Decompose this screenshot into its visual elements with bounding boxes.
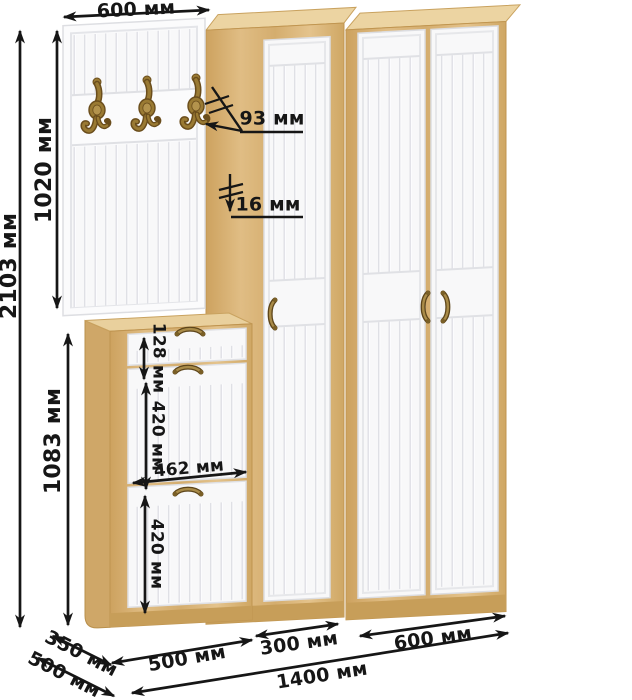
- dim-hook-depth-label: 93 мм: [239, 110, 304, 129]
- dim-panel-thickness-label: 16 мм: [235, 196, 300, 215]
- wide-wardrobe-left-door: [358, 30, 425, 599]
- dim-panel-width-label: 600 мм: [96, 0, 175, 22]
- shoe-cabinet-drawer: [128, 328, 246, 365]
- furniture-diagram: [0, 0, 632, 700]
- dim-total-height-label: 2103 мм: [0, 213, 21, 319]
- coat-hook-panel: [63, 18, 205, 315]
- dim-cabinet-height-label: 1083 мм: [43, 388, 65, 494]
- shoe-cabinet-side: [85, 319, 110, 628]
- wide-wardrobe: [346, 5, 520, 620]
- wide-wardrobe-right-door: [431, 26, 498, 595]
- dim-drawer-height-label: 128 мм: [150, 323, 167, 393]
- dim-lower-flap-label: 420 мм: [148, 519, 165, 589]
- diagram-canvas: 2103 мм 1020 мм 1083 мм 600 мм 93 мм 16 …: [0, 0, 632, 700]
- dim-panel-height-label: 1020 мм: [34, 117, 56, 223]
